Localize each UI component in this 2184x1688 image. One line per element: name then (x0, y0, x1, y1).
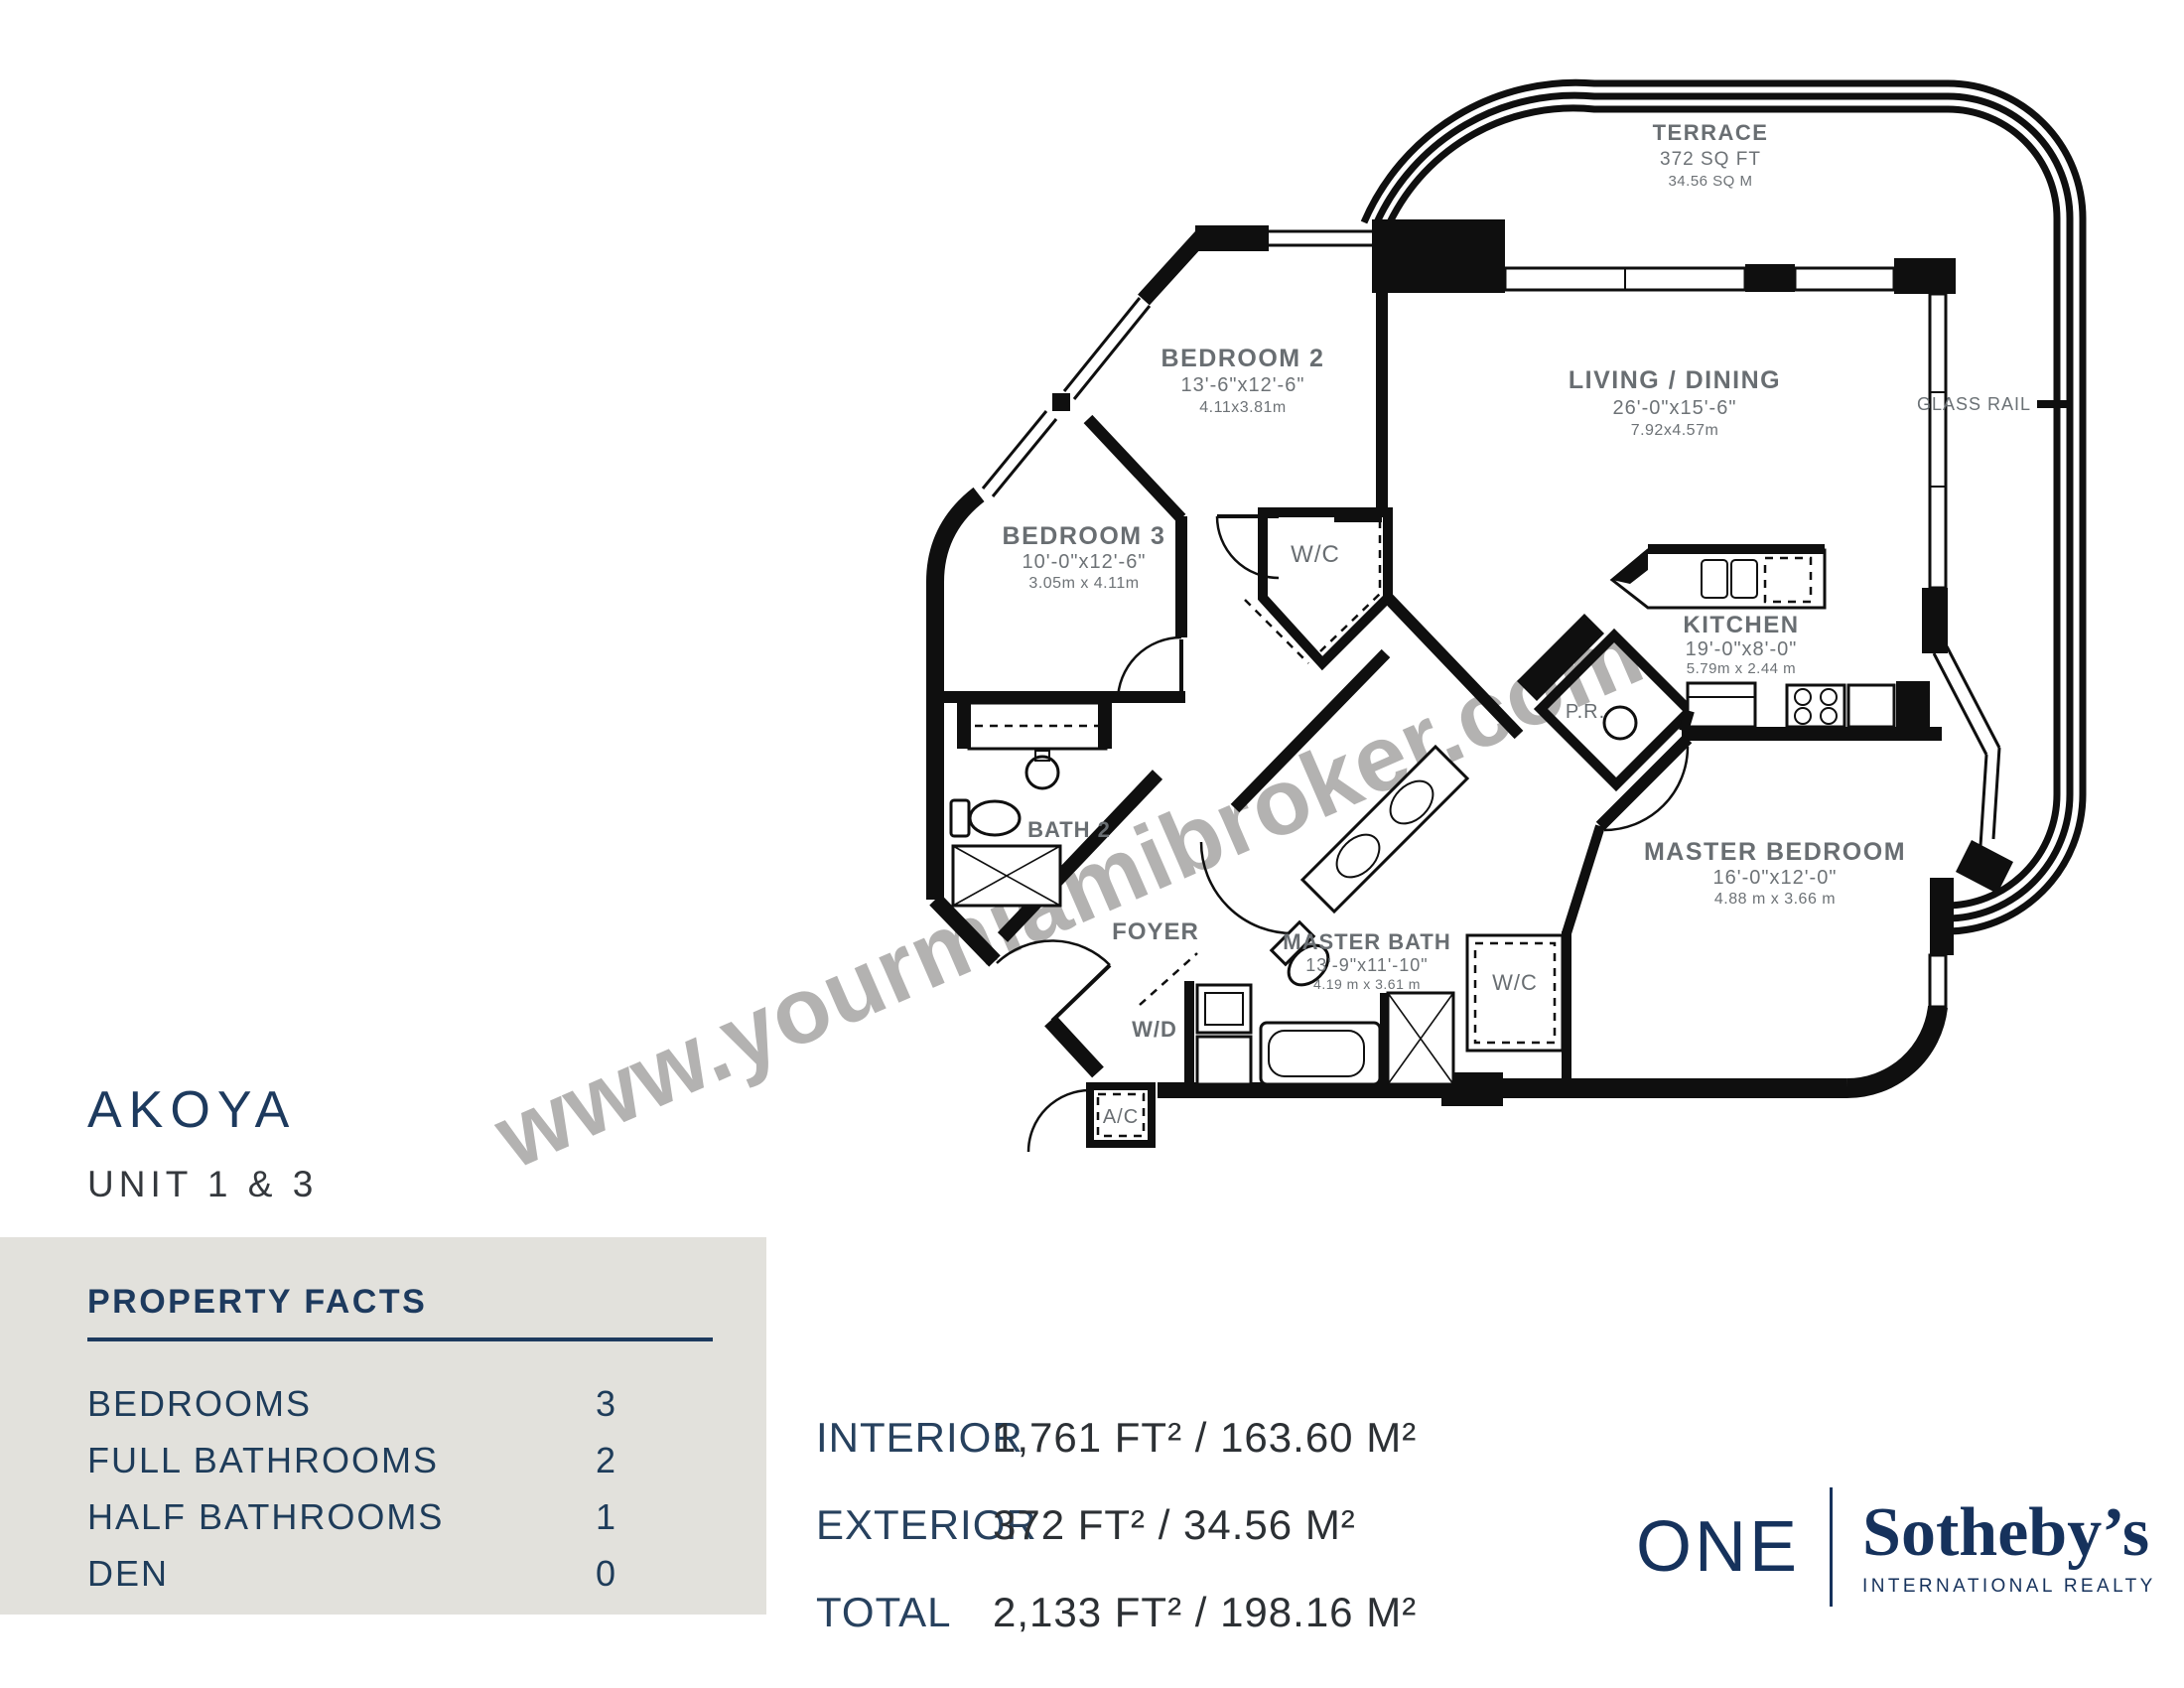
svg-text:372 SQ FT: 372 SQ FT (1660, 149, 1761, 170)
svg-text:3.05m x 4.11m: 3.05m x 4.11m (1028, 575, 1139, 592)
building-name: AKOYA (87, 1080, 296, 1140)
fact-value: 3 (596, 1383, 617, 1425)
terrace-label: TERRACE (1653, 120, 1769, 145)
svg-text:5.79m x 2.44 m: 5.79m x 2.44 m (1687, 660, 1796, 677)
property-facts-heading: PROPERTY FACTS (87, 1283, 713, 1341)
svg-text:13'-6"x12'-6": 13'-6"x12'-6" (1181, 374, 1305, 396)
area-value: 372 FT² / 34.56 M² (993, 1501, 1356, 1549)
fact-label: FULL BATHROOMS (87, 1440, 439, 1480)
logo-sub-text: INTERNATIONAL REALTY (1862, 1576, 2156, 1598)
bedroom3-label: BEDROOM 3 (1003, 522, 1166, 550)
svg-text:4.88 m x 3.66 m: 4.88 m x 3.66 m (1714, 891, 1836, 908)
brokerage-logo: ONE Sotheby’s INTERNATIONAL REALTY (1636, 1487, 2156, 1607)
bedroom2-label: BEDROOM 2 (1161, 345, 1325, 372)
svg-text:7.92x4.57m: 7.92x4.57m (1631, 422, 1719, 439)
refrigerator-icon (1688, 683, 1755, 727)
fact-row-half-bathrooms: HALF BATHROOMS 1 (87, 1496, 766, 1553)
bedroom-walls (943, 292, 1382, 937)
logo-brand-block: Sotheby’s INTERNATIONAL REALTY (1862, 1496, 2156, 1598)
laundry-area (1028, 953, 1251, 1152)
bath2-label: BATH 2 (1027, 817, 1111, 842)
master-bath-fixtures (1261, 747, 1563, 1084)
area-row-total: TOTAL 2,133 FT² / 198.16 M² (816, 1589, 1417, 1636)
property-facts-rows: BEDROOMS 3 FULL BATHROOMS 2 HALF BATHROO… (87, 1383, 766, 1610)
pr-label: P.R. (1566, 701, 1605, 723)
svg-text:34.56 SQ M: 34.56 SQ M (1668, 173, 1752, 190)
area-label: TOTAL (816, 1589, 993, 1636)
fact-label: DEN (87, 1553, 169, 1594)
floorplan-page: www.yourmiamibroker.com (0, 0, 2184, 1688)
area-value: 1,761 FT² / 163.60 M² (993, 1414, 1417, 1462)
fact-value: 1 (596, 1496, 617, 1538)
toilet-icon (970, 801, 1020, 835)
svg-text:13'-9"x11'-10": 13'-9"x11'-10" (1305, 955, 1428, 975)
area-value: 2,133 FT² / 198.16 M² (993, 1589, 1417, 1636)
fact-row-bedrooms: BEDROOMS 3 (87, 1383, 766, 1440)
terrace-rail (1364, 82, 2083, 931)
master-bath-label: MASTER BATH (1283, 929, 1450, 954)
master-bedroom-label: MASTER BEDROOM (1644, 838, 1906, 866)
fact-value: 0 (596, 1553, 617, 1595)
fact-row-full-bathrooms: FULL BATHROOMS 2 (87, 1440, 766, 1496)
wd-label: W/D (1132, 1017, 1177, 1042)
fact-value: 2 (596, 1440, 617, 1481)
wc-closet (1245, 512, 1388, 663)
toilet-tank-icon (951, 800, 969, 836)
logo-divider (1830, 1487, 1833, 1607)
area-summary: INTERIOR 1,761 FT² / 163.60 M² EXTERIOR … (816, 1414, 1417, 1676)
area-row-interior: INTERIOR 1,761 FT² / 163.60 M² (816, 1414, 1417, 1462)
dryer-icon (1197, 1037, 1251, 1084)
svg-text:10'-0"x12'-6": 10'-0"x12'-6" (1023, 551, 1147, 573)
property-facts-panel: PROPERTY FACTS BEDROOMS 3 FULL BATHROOMS… (0, 1237, 766, 1615)
area-label: EXTERIOR (816, 1501, 993, 1549)
wc-label: W/C (1291, 541, 1340, 568)
svg-text:4.19 m x 3.61 m: 4.19 m x 3.61 m (1313, 976, 1421, 992)
fact-label: BEDROOMS (87, 1383, 312, 1424)
toilet-icon (1604, 707, 1636, 739)
logo-brand-text: Sotheby’s (1862, 1496, 2156, 1570)
foyer-label: FOYER (1112, 918, 1199, 945)
svg-text:16'-0"x12'-0": 16'-0"x12'-0" (1713, 867, 1838, 889)
fact-row-den: DEN 0 (87, 1553, 766, 1610)
area-row-exterior: EXTERIOR 372 FT² / 34.56 M² (816, 1501, 1417, 1549)
glass-rail-label: GLASS RAIL (1917, 394, 2031, 414)
master-bedroom-walls (1567, 739, 1688, 1078)
unit-name: UNIT 1 & 3 (87, 1164, 318, 1205)
area-label: INTERIOR (816, 1414, 993, 1462)
svg-text:26'-0"x15'-6": 26'-0"x15'-6" (1613, 397, 1737, 419)
ac-label: A/C (1103, 1106, 1139, 1128)
fact-label: HALF BATHROOMS (87, 1496, 444, 1537)
master-wc-label: W/C (1492, 970, 1538, 995)
kitchen-label: KITCHEN (1683, 612, 1799, 638)
living-dining-label: LIVING / DINING (1569, 366, 1781, 394)
svg-text:4.11x3.81m: 4.11x3.81m (1199, 399, 1286, 416)
svg-text:19'-0"x8'-0": 19'-0"x8'-0" (1686, 638, 1798, 660)
logo-one-text: ONE (1636, 1506, 1800, 1588)
